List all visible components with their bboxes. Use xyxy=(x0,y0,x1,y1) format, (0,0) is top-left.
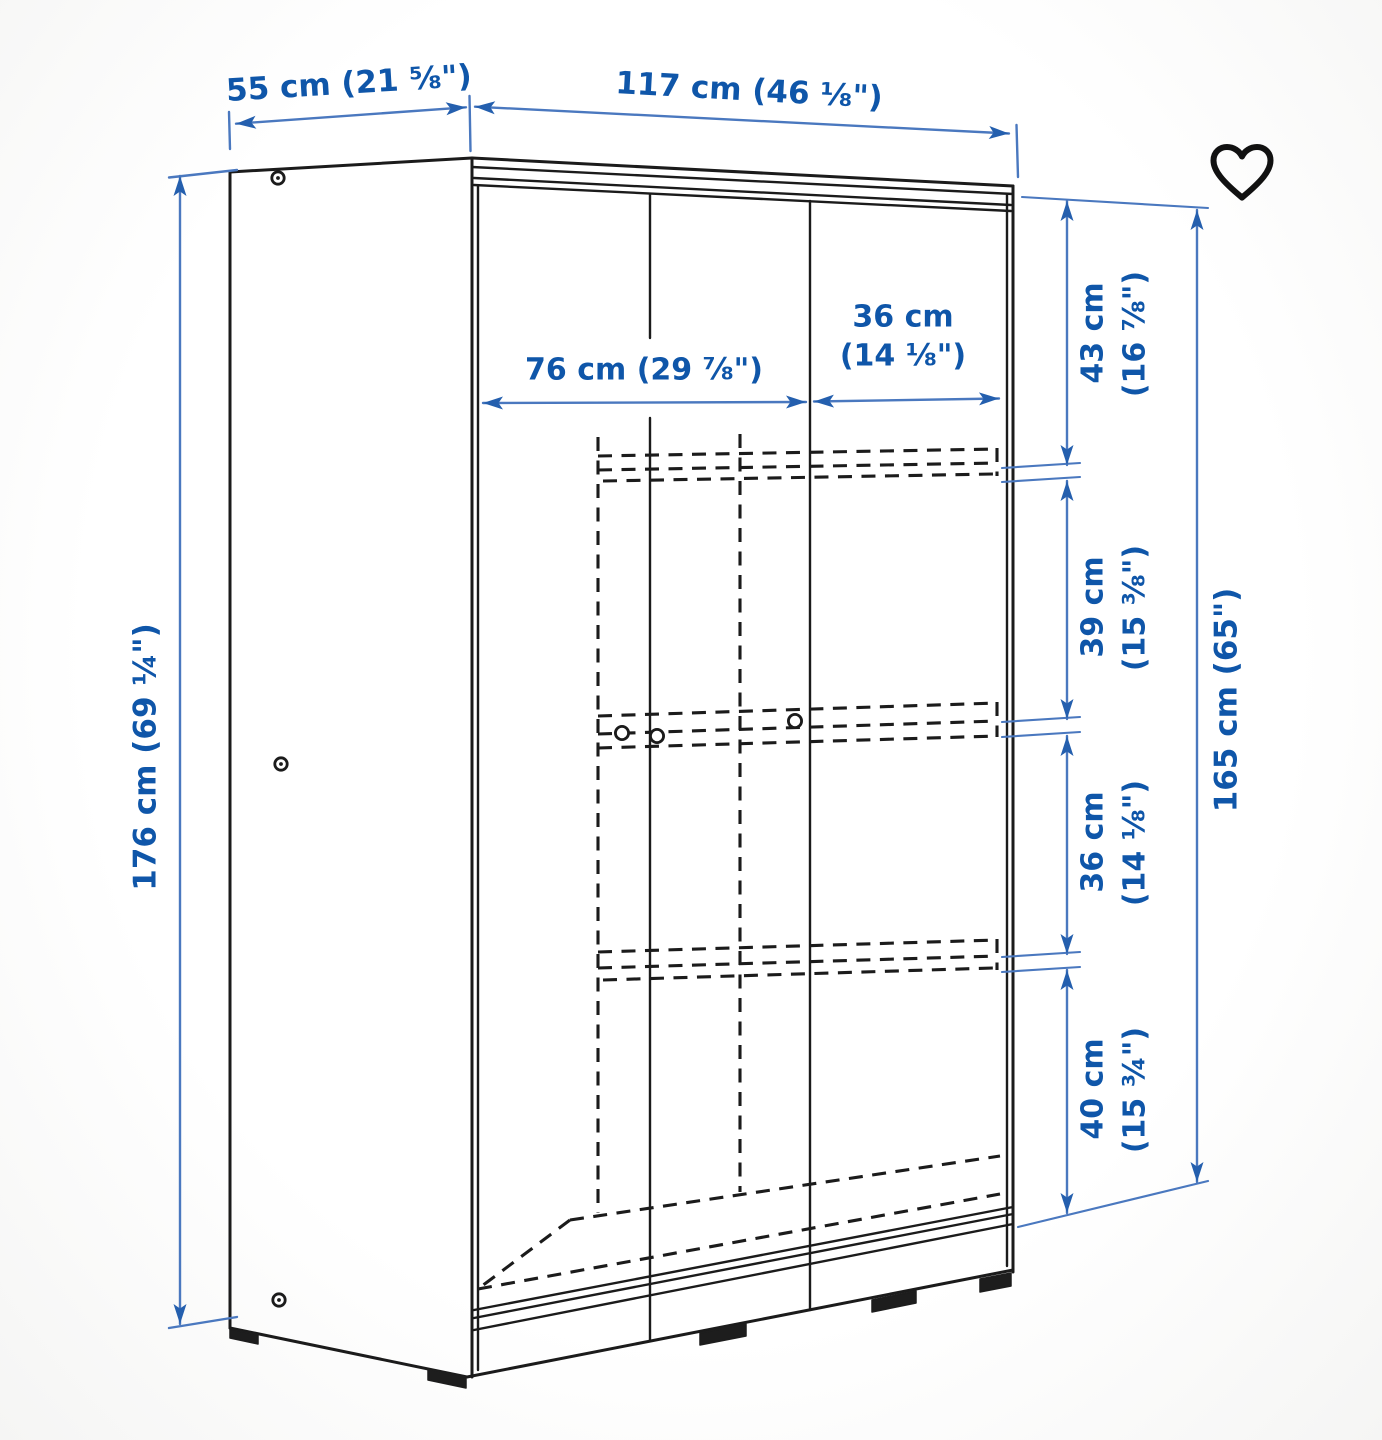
favorite-button[interactable] xyxy=(1206,140,1278,208)
shelf-pin xyxy=(650,729,663,742)
dim-height-label: 176 cm (69 ¼") xyxy=(128,623,164,890)
dim-interior-height-label: 165 cm (65") xyxy=(1209,588,1245,813)
shelf-pin xyxy=(788,714,801,727)
dim-interior-width-right-label-2: (14 ⅛") xyxy=(840,339,966,374)
dim-height: 176 cm (69 ¼") xyxy=(128,170,238,1328)
dim-section-1-label-2: (16 ⅞") xyxy=(1118,271,1153,397)
base-rail xyxy=(467,1207,1013,1377)
dim-section-3: 36 cm (14 ⅛") xyxy=(1067,736,1153,954)
product-dimensions-page: 55 cm (21 ⅝") 117 cm (46 ⅛") 176 cm (69 … xyxy=(0,0,1382,1440)
wardrobe-dimension-diagram: 55 cm (21 ⅝") 117 cm (46 ⅛") 176 cm (69 … xyxy=(0,0,1382,1440)
dim-section-3-label-1: 36 cm xyxy=(1076,791,1111,892)
dim-section-3-label-2: (14 ⅛") xyxy=(1118,780,1153,906)
dim-section-2-label-2: (15 ⅜") xyxy=(1118,545,1153,671)
dim-section-2-label-1: 39 cm xyxy=(1076,556,1111,657)
dim-section-2: 39 cm (15 ⅜") xyxy=(1067,481,1153,719)
dim-section-1-label-1: 43 cm xyxy=(1076,282,1111,383)
shelf-middle xyxy=(598,702,997,748)
interior-hidden-lines xyxy=(478,434,1000,1289)
top-panel-and-track xyxy=(472,158,1013,211)
shelf-pin xyxy=(615,726,628,739)
dim-width: 117 cm (46 ⅛") xyxy=(470,65,1019,177)
dim-depth: 55 cm (21 ⅝") xyxy=(225,58,473,149)
dim-interior-width-right-label-1: 36 cm xyxy=(852,300,953,335)
dim-section-1: 43 cm (16 ⅞") xyxy=(1067,201,1153,465)
dim-interior-width-right: 36 cm (14 ⅛") xyxy=(814,300,999,402)
dim-section-4-label-2: (15 ¾") xyxy=(1118,1027,1153,1153)
dim-interior-width-left-label: 76 cm (29 ⅞") xyxy=(525,353,763,388)
dim-section-4-label-1: 40 cm xyxy=(1076,1038,1111,1139)
dim-section-4: 40 cm (15 ¾") xyxy=(1067,970,1153,1213)
dim-interior-width-left: 76 cm (29 ⅞") xyxy=(483,353,806,404)
heart-icon xyxy=(1210,144,1274,204)
dim-depth-label: 55 cm (21 ⅝") xyxy=(225,58,473,109)
shelf-top xyxy=(598,448,997,481)
side-panel xyxy=(230,158,472,1377)
shelf-lower xyxy=(598,939,997,980)
dim-interior-height: 165 cm (65") xyxy=(1197,210,1245,1182)
dim-width-label: 117 cm (46 ⅛") xyxy=(615,65,884,116)
